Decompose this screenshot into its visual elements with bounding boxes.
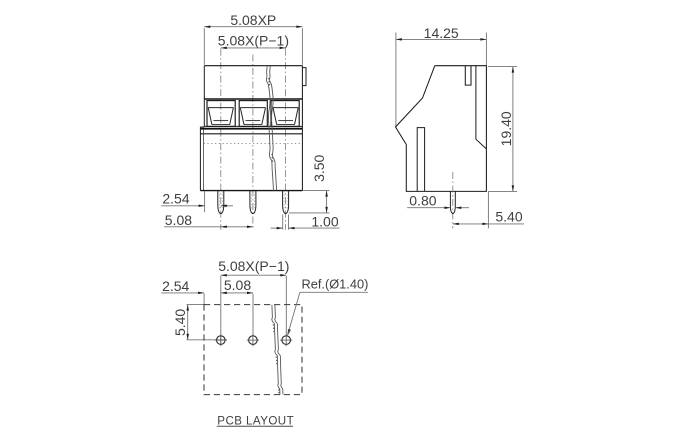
svg-text:5.08X(P−1): 5.08X(P−1) [218,32,289,48]
svg-text:19.40: 19.40 [498,111,514,146]
svg-text:2.54: 2.54 [162,278,189,294]
svg-text:3.50: 3.50 [311,154,327,181]
svg-text:PCB LAYOUT: PCB LAYOUT [217,414,294,427]
svg-text:5.08X(P−1): 5.08X(P−1) [218,258,289,274]
svg-text:5.08: 5.08 [165,212,192,228]
svg-text:Ref.(Ø1.40): Ref.(Ø1.40) [302,277,369,292]
svg-text:5.08: 5.08 [224,277,251,293]
svg-text:1.00: 1.00 [311,213,338,229]
svg-text:5.08XP: 5.08XP [230,12,276,28]
svg-text:14.25: 14.25 [424,25,459,41]
svg-text:2.54: 2.54 [162,191,189,207]
svg-text:5.40: 5.40 [495,209,522,225]
svg-text:5.40: 5.40 [172,309,188,336]
svg-text:0.80: 0.80 [409,193,436,209]
